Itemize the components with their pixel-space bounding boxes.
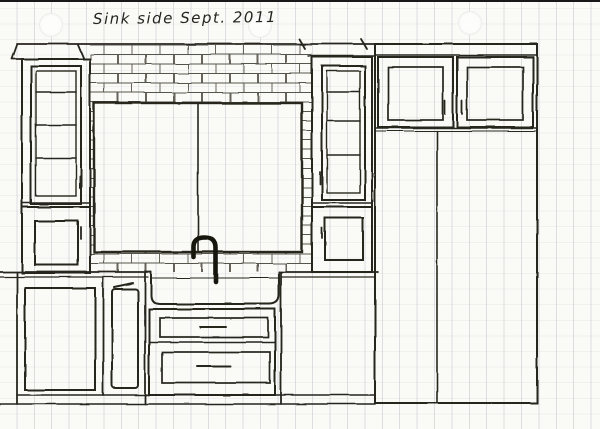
upper-cabinets-over-pantry bbox=[378, 57, 533, 127]
sink-drawer-stack bbox=[145, 272, 281, 404]
left-glass-door-cabinet bbox=[22, 59, 90, 207]
toe-kick-floor-line bbox=[0, 395, 375, 404]
left-base-door-cabinet bbox=[17, 273, 103, 404]
sketch-page: { "title": "Sink side Sept. 2011", "sket… bbox=[0, 0, 600, 429]
narrow-pullout-cabinet bbox=[112, 283, 138, 388]
cabinet-elevation-drawing bbox=[0, 0, 600, 429]
right-glass-door-cabinet bbox=[312, 57, 372, 207]
left-upper-door-cabinet bbox=[22, 207, 90, 273]
window-two-panes bbox=[94, 103, 302, 252]
right-upper-door-cabinet bbox=[312, 207, 372, 272]
